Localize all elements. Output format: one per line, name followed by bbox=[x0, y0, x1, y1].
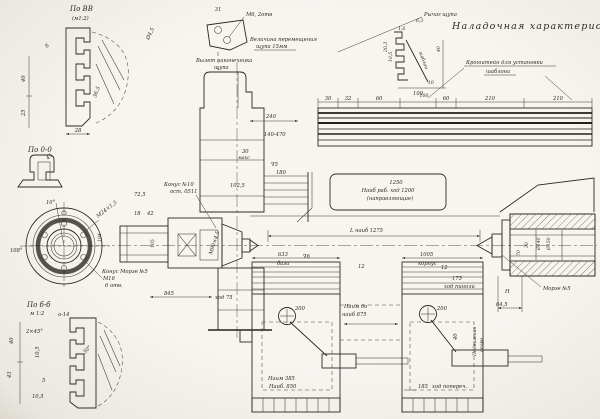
label-support-1: Подвижная bbox=[472, 327, 478, 357]
dim-6-holes: 6 отв. bbox=[105, 283, 123, 289]
pedestal-dims: Наим до наиб 875 12 12 bbox=[340, 264, 448, 340]
bed-note: (направляющие) bbox=[367, 195, 413, 202]
dim-633: 633 bbox=[278, 252, 289, 258]
section-bb-label: По б-б bbox=[26, 301, 51, 309]
probe-hole bbox=[224, 37, 231, 44]
flange-view: 10° М24×1,5 108° М16 6 отв. bbox=[10, 200, 123, 290]
probe-hole bbox=[215, 27, 222, 34]
section-vv-scale: (м1:2) bbox=[72, 15, 89, 22]
quill-bracket bbox=[500, 178, 594, 212]
dim-104: 104 bbox=[97, 233, 103, 242]
quill-wall-bottom bbox=[510, 261, 595, 276]
bed-dim-1250: 1250 bbox=[389, 180, 403, 186]
drawing-sheet: По ВВ (м1:2) 28 40 25 8 36,5 По 0-0 45 bbox=[0, 0, 600, 419]
dim-20-3: 20,3 bbox=[383, 42, 389, 53]
dim-42: 42 bbox=[146, 211, 154, 217]
finish-mark-5: ∇5 bbox=[271, 162, 278, 168]
section-bb: По б-б м 1:2 а-14 2×45° 40 43 10,5 5 30°… bbox=[7, 301, 122, 408]
rail-dim-60a: 60 bbox=[376, 96, 383, 102]
rail-dim-30: 30 bbox=[325, 96, 332, 102]
dim-30-quill: 30 bbox=[524, 242, 530, 248]
quill-cap bbox=[502, 220, 510, 270]
dim-d140: Ø140 bbox=[535, 237, 542, 251]
dim-1005-label: корпус bbox=[418, 261, 437, 267]
rail-dim-60b: 60 bbox=[443, 96, 450, 102]
section-vv: По ВВ (м1:2) 28 40 25 8 36,5 bbox=[21, 5, 128, 134]
side-tab bbox=[240, 330, 252, 342]
dim-180: 180 bbox=[276, 170, 287, 176]
label-morse-5: Конус Морзе №5 bbox=[101, 269, 148, 275]
probe-bracket: М6, 2отв 31 Ø4,5 Величина перемещения щу… bbox=[144, 7, 457, 71]
dim-stroke-75: ход 75 bbox=[215, 295, 233, 301]
dim-angle-108: 108° bbox=[10, 248, 23, 254]
dim-10-det: 10 bbox=[428, 80, 434, 86]
bed-stroke-label: Наиб раб. ход 1200 bbox=[361, 187, 416, 194]
dim-thread-m90: М90×4,5 bbox=[208, 230, 222, 256]
label-cone-2: ост. 0511 bbox=[170, 189, 197, 195]
label-template-word: шаблон bbox=[417, 50, 430, 70]
label-probe-lever: Рычаг щупа bbox=[423, 12, 457, 18]
oo-profile bbox=[18, 155, 62, 187]
template-steps bbox=[394, 32, 408, 80]
t-slot-profile bbox=[66, 28, 90, 126]
dim-40-det: 40 bbox=[436, 46, 442, 53]
pedestal-left: 633 база ∇6 200 Наим 385 Наиб. 850 bbox=[240, 252, 408, 412]
dim-1-6: 1,6 bbox=[398, 26, 405, 32]
dim-18: 18 bbox=[134, 211, 141, 217]
dim-1005: 1005 bbox=[420, 252, 433, 258]
headstock: Конус №10 ост. 0511 72,5 18 42 102,5 240… bbox=[97, 52, 312, 338]
dim-633-label: база bbox=[277, 260, 289, 267]
drawing-title: Наладочная характеристика bbox=[451, 21, 600, 32]
dim-12-a: 12 bbox=[358, 264, 365, 270]
rail-template: 30 32 60 100 60 210 210 bbox=[318, 91, 592, 146]
dim-40-ped: 40 bbox=[453, 333, 459, 341]
dim-175: 175 bbox=[452, 276, 462, 282]
dim-12-b: 12 bbox=[441, 265, 448, 271]
dim-10-5-det: 10,5 bbox=[388, 52, 394, 62]
guide-chamfer bbox=[297, 208, 312, 222]
bracket-note: Кронштейн для установки шаблона bbox=[428, 60, 572, 100]
label-morse-quill: Морзе №5 bbox=[542, 286, 571, 292]
template-detail: 6,3 1,6 20,3 10,5 шаблон 40 10 100 bbox=[383, 18, 446, 99]
headstock-outline bbox=[200, 72, 264, 212]
dim-range: 140-470 bbox=[264, 132, 286, 138]
label-probe-tip-2: щупа bbox=[214, 65, 229, 71]
dim-6-3: 6,3 bbox=[416, 18, 423, 24]
label-bracket-2: шаблона bbox=[486, 68, 510, 75]
dim-2x45: 2×45° bbox=[25, 329, 43, 335]
foot-band bbox=[402, 398, 483, 412]
dim-25: 25 bbox=[21, 109, 27, 117]
oo-inner bbox=[38, 162, 50, 180]
dim-angle-10: 10° bbox=[46, 200, 56, 206]
bed: 1250 Наиб раб. ход 1200 (направляющие) L… bbox=[250, 174, 500, 242]
rail-dim-210a: 210 bbox=[484, 96, 496, 102]
dim-max-850: Наиб. 850 bbox=[268, 383, 297, 390]
dim-h: Н bbox=[504, 289, 510, 295]
dim-36-5: 36,5 bbox=[92, 86, 102, 99]
hatch-line bbox=[96, 64, 114, 104]
tailstock-quill: 70 30 Ø140 Ø150 Морзе №5 Н 64,5 175 ход … bbox=[444, 178, 595, 312]
section-vv-label: По ВВ bbox=[69, 5, 93, 13]
dim-40: 40 bbox=[21, 75, 27, 83]
connecting-rod bbox=[356, 358, 408, 364]
dim-min-385: Наим 385 bbox=[267, 376, 295, 382]
dim-5: 5 bbox=[42, 378, 45, 384]
quill-wall-top bbox=[510, 214, 595, 229]
dim-d150: Ø150 bbox=[545, 237, 552, 251]
label-probe-travel-1: Величина перемещения bbox=[249, 37, 317, 43]
rail-dim-32: 32 bbox=[345, 96, 352, 102]
rail-dim-210b: 210 bbox=[552, 96, 564, 102]
diagonal-stay bbox=[290, 322, 327, 356]
rail-dim-100: 100 bbox=[413, 91, 424, 97]
hatch-line bbox=[104, 330, 120, 366]
dim-105: 105 bbox=[150, 239, 156, 248]
dim-875-a: Наим до bbox=[343, 304, 367, 310]
spindle-nose bbox=[222, 224, 242, 266]
dim-40-bb: 40 bbox=[9, 337, 15, 345]
dim-10-5: 10,5 bbox=[35, 346, 41, 358]
hidden-cavity bbox=[410, 322, 474, 390]
engineering-drawing: По ВВ (м1:2) 28 40 25 8 36,5 По 0-0 45 bbox=[0, 0, 600, 419]
leader-line bbox=[229, 17, 244, 37]
section-oo: По 0-0 45 bbox=[18, 146, 62, 187]
finish-mark-6: ∇6 bbox=[303, 254, 311, 260]
dim-a14: а-14 bbox=[58, 312, 69, 318]
label-support-2: опора bbox=[480, 338, 485, 352]
dim-70: 70 bbox=[516, 250, 522, 256]
dim-72-5: 72,5 bbox=[134, 192, 146, 198]
hatch-line bbox=[98, 354, 112, 390]
probe-body bbox=[207, 20, 247, 50]
dim-31: 31 bbox=[215, 7, 222, 13]
connecting-rod bbox=[508, 356, 542, 362]
hatch-line bbox=[100, 336, 116, 372]
dim-240: 240 bbox=[265, 114, 277, 120]
dim-30deg: 30° bbox=[82, 344, 93, 355]
dim-lmax: L наиб 1275 bbox=[349, 227, 383, 234]
dim-64-5: 64,5 bbox=[496, 302, 508, 308]
dim-thread-m24: М24×1,5 bbox=[95, 200, 119, 220]
angle-10-line bbox=[56, 203, 64, 246]
label-cone-1: Конус №10 bbox=[163, 182, 194, 188]
dim-cross-stroke: ход попереч. bbox=[432, 384, 467, 390]
label-probe-tip-1: Вылет наконечника bbox=[195, 58, 252, 64]
foot-block bbox=[322, 354, 356, 368]
t-slot-profile-bb bbox=[70, 318, 96, 408]
dim-4-5: Ø4,5 bbox=[144, 27, 156, 42]
dim-quill-stroke: ход пиноли bbox=[444, 284, 475, 290]
dim-200-left: 200 bbox=[294, 306, 306, 312]
dim-102-5: 102,5 bbox=[230, 183, 245, 189]
dim-875-b: наиб 875 bbox=[342, 311, 367, 318]
dim-185: 185 bbox=[418, 384, 428, 390]
leader-line bbox=[196, 195, 216, 228]
label-m6-holes: М6, 2отв bbox=[245, 12, 272, 18]
dim-28: 28 bbox=[74, 128, 82, 134]
dim-10-5b: 10,5 bbox=[32, 394, 44, 400]
section-bb-scale: м 1:2 bbox=[30, 311, 44, 317]
label-bracket-1: Кронштейн для установки bbox=[465, 60, 543, 66]
dim-8: 8 bbox=[44, 42, 51, 49]
dim-m16: М16 bbox=[102, 276, 116, 282]
dim-30max-a: 30 bbox=[242, 149, 249, 155]
label-probe-travel-2: щупа 15мм bbox=[256, 44, 288, 50]
dim-43: 43 bbox=[7, 371, 13, 379]
dim-30max-b: макс bbox=[238, 156, 250, 161]
dim-200-right: 200 bbox=[436, 306, 448, 312]
dim-845: 845 bbox=[164, 291, 174, 297]
